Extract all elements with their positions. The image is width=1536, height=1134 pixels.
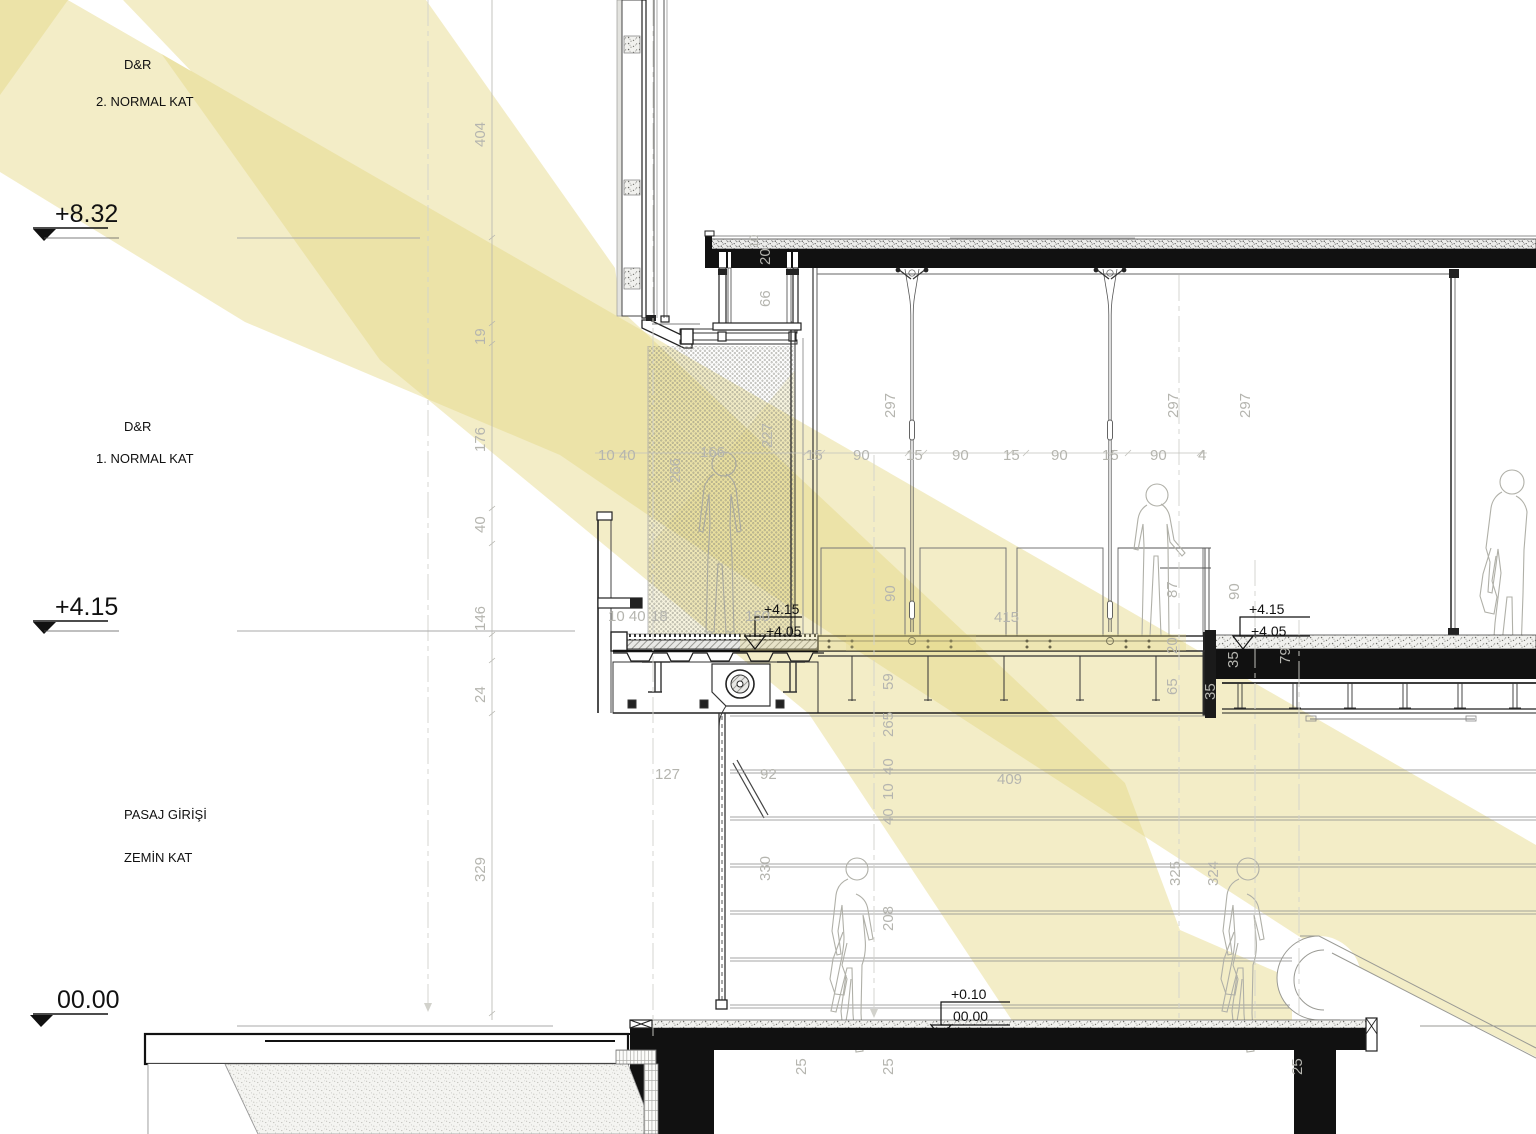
svg-text:92: 92 — [760, 766, 777, 783]
svg-text:127: 127 — [655, 766, 680, 783]
svg-text:40: 40 — [880, 758, 897, 775]
svg-text:90: 90 — [1150, 447, 1167, 464]
svg-text:265: 265 — [880, 712, 897, 737]
svg-text:90: 90 — [1226, 583, 1243, 600]
svg-text:79: 79 — [1277, 647, 1294, 664]
svg-text:25: 25 — [1289, 1058, 1306, 1075]
svg-text:10: 10 — [880, 783, 897, 800]
svg-text:90: 90 — [853, 447, 870, 464]
svg-text:90: 90 — [952, 447, 969, 464]
svg-text:324: 324 — [1205, 861, 1222, 886]
svg-text:15: 15 — [906, 447, 923, 464]
svg-text:35: 35 — [1202, 683, 1219, 700]
svg-text:4: 4 — [1198, 447, 1206, 464]
svg-text:10 40: 10 40 — [598, 447, 636, 464]
svg-text:+4.15: +4.15 — [1249, 601, 1285, 617]
svg-text:227: 227 — [759, 423, 776, 448]
svg-text:10 40: 10 40 — [608, 608, 646, 625]
svg-text:208: 208 — [880, 906, 897, 931]
svg-text:166: 166 — [700, 444, 725, 461]
svg-text:90: 90 — [1051, 447, 1068, 464]
svg-text:409: 409 — [997, 771, 1022, 788]
svg-text:25: 25 — [880, 1058, 897, 1075]
svg-text:297: 297 — [1165, 393, 1182, 418]
svg-text:87: 87 — [1164, 581, 1181, 598]
svg-text:15: 15 — [1102, 447, 1119, 464]
svg-text:24: 24 — [472, 686, 489, 703]
svg-text:20: 20 — [757, 248, 774, 265]
svg-text:297: 297 — [1237, 393, 1254, 418]
svg-text:266: 266 — [667, 458, 684, 483]
svg-text:325: 325 — [1167, 861, 1184, 886]
svg-text:297: 297 — [882, 393, 899, 418]
svg-text:00.00: 00.00 — [953, 1008, 988, 1024]
svg-text:15: 15 — [806, 447, 823, 464]
svg-text:20: 20 — [1164, 637, 1181, 654]
svg-text:18: 18 — [651, 608, 668, 625]
svg-text:176: 176 — [472, 427, 489, 452]
svg-text:40: 40 — [472, 516, 489, 533]
svg-text:10: 10 — [747, 234, 761, 248]
svg-text:59: 59 — [880, 673, 897, 690]
svg-text:+0.10: +0.10 — [951, 986, 987, 1002]
svg-text:15: 15 — [1003, 447, 1020, 464]
svg-text:19: 19 — [472, 328, 489, 345]
svg-text:150: 150 — [745, 608, 770, 625]
svg-text:65: 65 — [1164, 678, 1181, 695]
svg-text:25: 25 — [793, 1058, 810, 1075]
svg-text:415: 415 — [994, 609, 1019, 626]
svg-text:330: 330 — [757, 856, 774, 881]
svg-text:35: 35 — [1225, 651, 1242, 668]
svg-text:40: 40 — [880, 808, 897, 825]
svg-text:66: 66 — [757, 290, 774, 307]
svg-text:90: 90 — [882, 585, 899, 602]
svg-text:329: 329 — [472, 857, 489, 882]
svg-text:146: 146 — [472, 606, 489, 631]
svg-text:404: 404 — [472, 122, 489, 147]
